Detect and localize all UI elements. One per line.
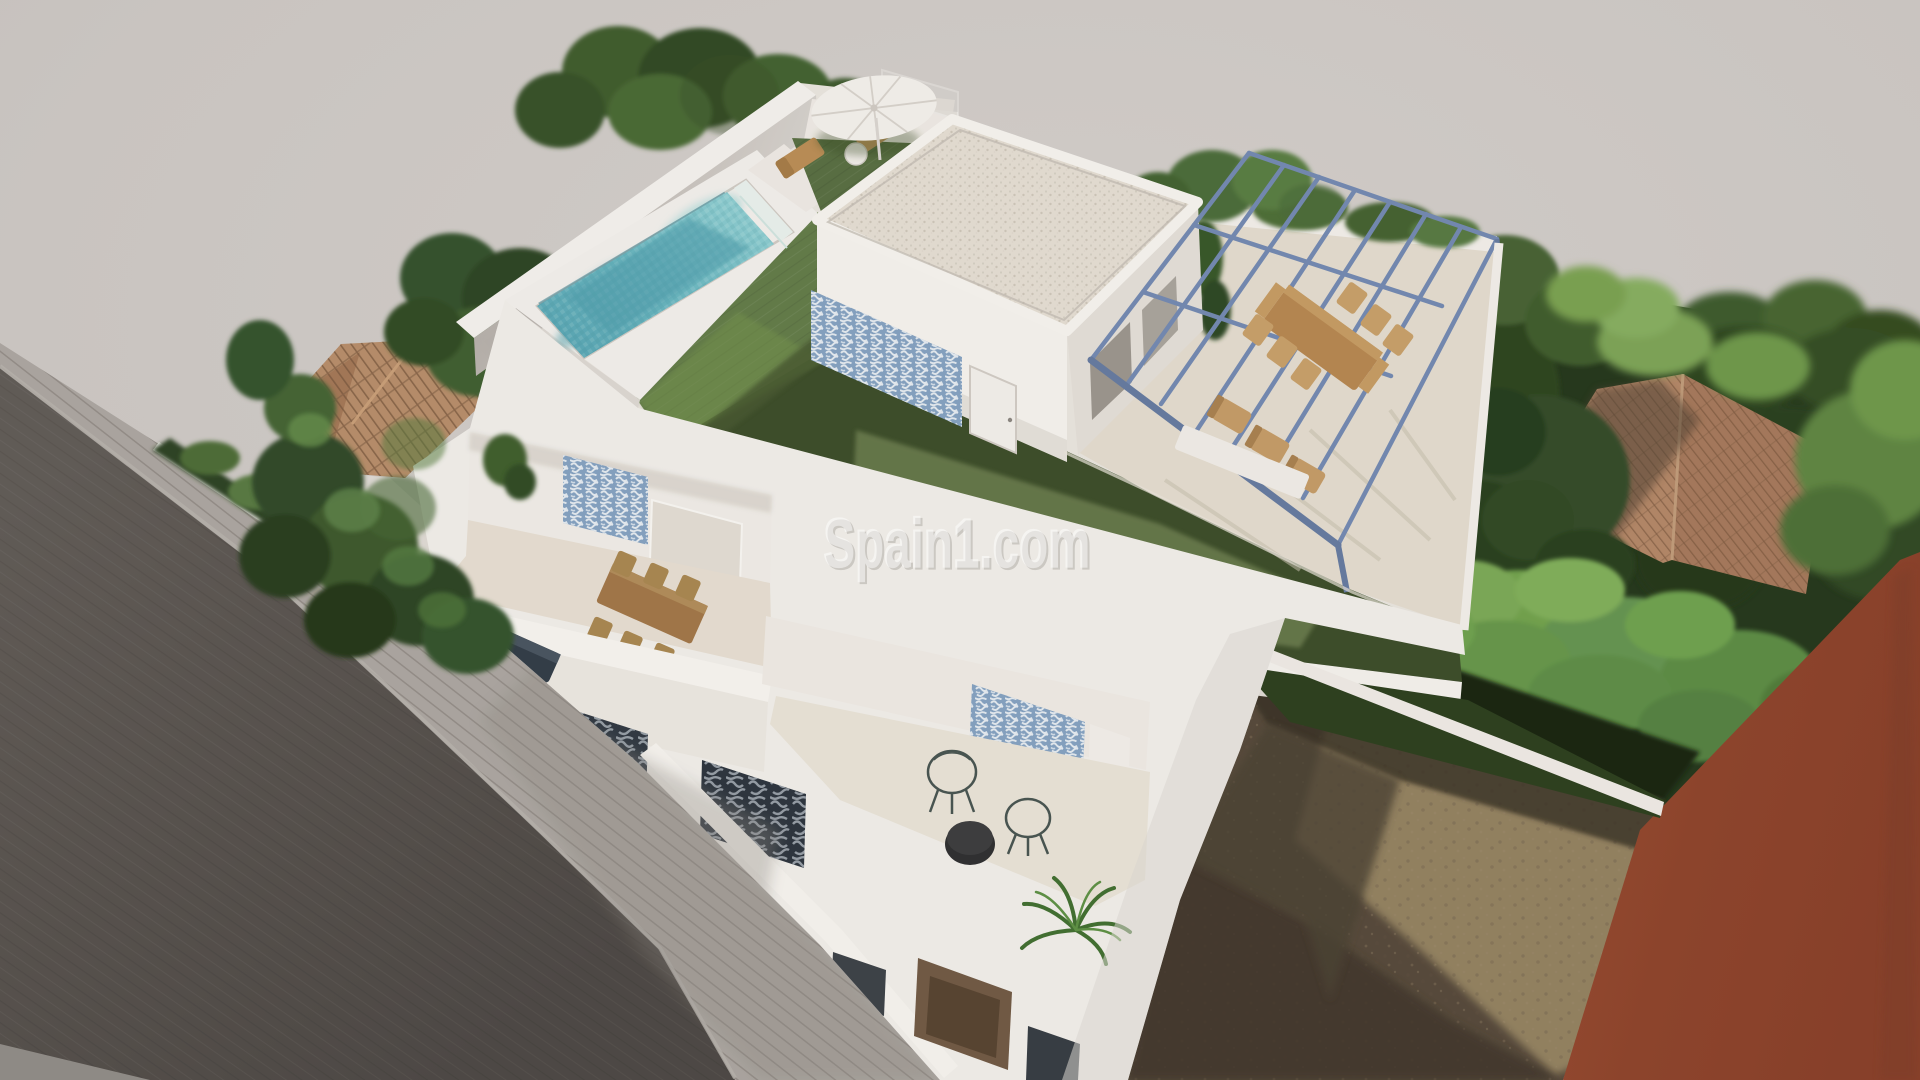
svg-text:Spain1.com: Spain1.com xyxy=(823,504,1090,582)
